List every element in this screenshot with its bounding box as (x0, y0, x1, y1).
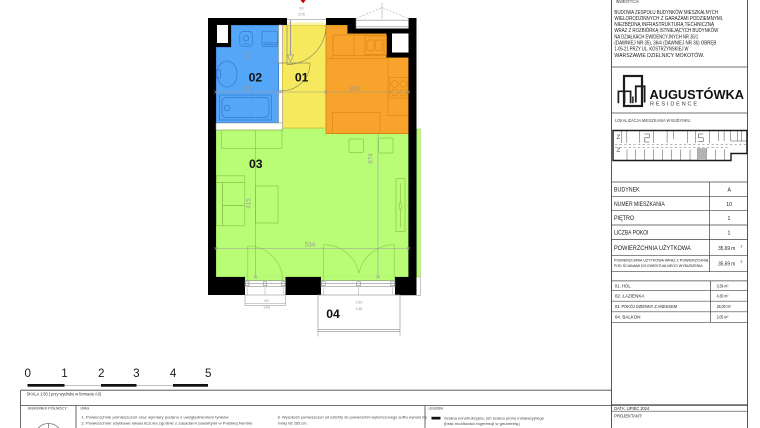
svg-text:90: 90 (299, 6, 304, 11)
svg-text:RESIDENCE: RESIDENCE (650, 101, 699, 107)
svg-text:(brak możliwości ingerencji w: (brak możliwości ingerencji w geometrię) (444, 421, 520, 426)
svg-text:POWIERZCHNIA UŻYTKOWA WRAZ Z P: POWIERZCHNIA UŻYTKOWA WRAZ Z POWIERZCHNI… (614, 258, 709, 263)
svg-text:674: 674 (368, 153, 375, 164)
svg-text:148: 148 (263, 305, 270, 310)
svg-text:230: 230 (356, 300, 363, 305)
svg-text:1: 1 (728, 216, 731, 222)
svg-text:WARSZAWIE DZIELNICY MOKOTÓW.: WARSZAWIE DZIELNICY MOKOTÓW. (614, 52, 704, 59)
svg-text:2: 2 (741, 260, 743, 264)
svg-text:534: 534 (305, 242, 316, 249)
svg-text:2,05 m²: 2,05 m² (717, 314, 729, 319)
svg-text:NA DZIAŁKACH EWIDENCYJNYCH NR: NA DZIAŁKACH EWIDENCYJNYCH NR 35/1 (614, 34, 698, 41)
svg-text:LICZBA POKOI: LICZBA POKOI (614, 230, 649, 237)
svg-text:167: 167 (243, 86, 254, 93)
svg-text:5: 5 (205, 367, 211, 380)
svg-text:3: 3 (133, 367, 139, 380)
svg-text:BUDYNEK: BUDYNEK (614, 187, 640, 193)
svg-text:1: 1 (728, 231, 731, 237)
svg-text:4,30 m²: 4,30 m² (717, 293, 729, 298)
svg-text:POD ŚCIANAMI DO EWENTUALNEGO W: POD ŚCIANAMI DO EWENTUALNEGO WYBURZENIA (614, 263, 703, 268)
svg-text:04. BALKON: 04. BALKON (615, 315, 641, 320)
svg-text:35,69 m: 35,69 m (718, 246, 735, 252)
svg-text:LEGENDA: LEGENDA (429, 406, 444, 410)
svg-text:AUGUSTÓWKA: AUGUSTÓWKA (650, 87, 745, 102)
svg-text:INWESTYCJA: INWESTYCJA (616, 0, 640, 4)
svg-text:NIEZBĘDNĄ INFRASTRUKTURĄ TECHN: NIEZBĘDNĄ INFRASTRUKTURĄ TECHNICZNĄ (614, 22, 714, 28)
svg-text:346: 346 (349, 85, 360, 92)
svg-text:02: 02 (249, 71, 263, 85)
svg-text:LOKALIZACJA MIESZKANIA W BUDYN: LOKALIZACJA MIESZKANIA W BUDYNKU (615, 118, 690, 123)
svg-text:1: 1 (61, 367, 67, 380)
svg-text:2: 2 (741, 245, 743, 249)
svg-text:PROJEKTANT:: PROJEKTANT: (614, 413, 642, 418)
svg-text:02. ŁAZIENKA: 02. ŁAZIENKA (615, 294, 645, 299)
svg-text:1. Powierzchnie pomieszczeń or: 1. Powierzchnie pomieszczeń oraz wymiary… (81, 415, 228, 420)
svg-text:10: 10 (726, 202, 732, 208)
svg-text:415: 415 (246, 198, 253, 209)
svg-text:225: 225 (245, 50, 252, 61)
svg-text:NUMER MIESZKANIA: NUMER MIESZKANIA (614, 201, 665, 207)
svg-text:DATA: LIPIEC 2024: DATA: LIPIEC 2024 (614, 406, 650, 411)
svg-text:04: 04 (326, 307, 340, 321)
svg-text:KIERUNEK PÓŁNOCY:: KIERUNEK PÓŁNOCY: (28, 405, 68, 410)
svg-text:UWAGI: UWAGI (81, 406, 90, 411)
svg-text:3,39 m²: 3,39 m² (717, 283, 729, 288)
svg-text:205: 205 (298, 12, 305, 17)
svg-text:SKALA 1:50 ( przy wydruku w fo: SKALA 1:50 ( przy wydruku w formacie A3) (27, 391, 102, 396)
svg-text:0: 0 (24, 367, 30, 380)
svg-text:90: 90 (264, 298, 269, 303)
svg-text:26,00 m²: 26,00 m² (717, 304, 732, 309)
svg-text:Ściana konstrukcyjna, lub ścia: Ściana konstrukcyjna, lub ściana pionu i… (444, 416, 545, 421)
svg-text:03. POKÓJ DZIENNY Z ANEKSEM: 03. POKÓJ DZIENNY Z ANEKSEM (615, 304, 678, 309)
svg-text:mniej niż 265 cm.: mniej niż 265 cm. (278, 422, 308, 426)
svg-text:A: A (727, 187, 731, 193)
svg-text:PIĘTRO: PIĘTRO (614, 216, 635, 222)
svg-text:(DAWNIEJ NR 35), 36/4 (DAWNIEJ: (DAWNIEJ NR 35), 36/4 (DAWNIEJ NR 36) OB… (614, 40, 716, 47)
svg-text:4: 4 (170, 367, 177, 380)
svg-text:2. Powierzchnie użytkowe lokal: 2. Powierzchnie użytkowe lokalu liczona … (81, 421, 253, 426)
svg-text:2: 2 (98, 367, 104, 380)
svg-text:POWIERZCHNIA UŻYTKOWA: POWIERZCHNIA UŻYTKOWA (614, 245, 691, 252)
svg-text:35,69 m: 35,69 m (718, 261, 735, 267)
svg-text:8. Wysokość pomieszczeń od szl: 8. Wysokość pomieszczeń od szlichty do p… (278, 416, 428, 420)
svg-text:148: 148 (356, 306, 363, 311)
svg-text:01: 01 (295, 71, 309, 85)
svg-text:03: 03 (249, 157, 263, 171)
svg-text:01. HOL: 01. HOL (615, 284, 631, 289)
